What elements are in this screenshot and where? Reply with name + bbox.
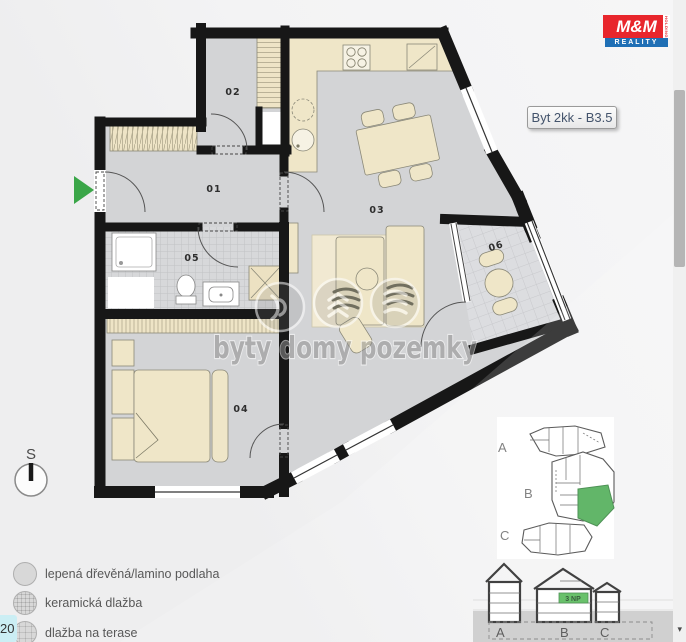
logo-reality-label: REALITY bbox=[605, 38, 668, 47]
elevation-label-a: A bbox=[496, 625, 505, 640]
minimap-building-c bbox=[522, 523, 592, 555]
stove bbox=[343, 45, 370, 70]
bedroom-cabinet bbox=[112, 418, 134, 460]
legend-label: lepená dřevěná/lamino podlaha bbox=[45, 567, 219, 581]
elevation-label-b: B bbox=[560, 625, 569, 640]
elevation: 3 NP A B C bbox=[473, 564, 680, 642]
closet-shelves bbox=[257, 38, 284, 108]
scrollbar-thumb[interactable] bbox=[674, 90, 685, 267]
corner-zoom-badge[interactable]: 20 bbox=[0, 615, 17, 642]
bedroom-cabinet bbox=[112, 370, 134, 414]
elevation-floor-tag: 3 NP bbox=[565, 596, 581, 603]
minimap: A B C bbox=[497, 417, 614, 559]
floorplan-viewer: 01 02 03 04 05 06 byty domy pozemky S bbox=[0, 0, 686, 642]
watermark-text: byty domy pozemky bbox=[213, 331, 477, 366]
room-label-05: 05 bbox=[184, 253, 199, 264]
bed-side bbox=[212, 370, 228, 462]
shower bbox=[112, 233, 156, 271]
storage-niche bbox=[108, 277, 154, 308]
minimap-label-b: B bbox=[524, 486, 533, 501]
tilted-stripes-icon bbox=[371, 279, 419, 327]
unit-tag-button[interactable]: Byt 2kk - B3.5 bbox=[527, 106, 617, 129]
minimap-label-c: C bbox=[500, 528, 509, 543]
logo-wordmark: M&M bbox=[603, 15, 670, 38]
minimap-label-a: A bbox=[498, 440, 507, 455]
elevation-label-c: C bbox=[600, 625, 609, 640]
toilet-tank bbox=[176, 296, 196, 304]
basin-drain bbox=[220, 294, 223, 297]
room-label-04: 04 bbox=[233, 404, 248, 415]
sound-waves-icon bbox=[256, 283, 304, 331]
shaft-niche bbox=[261, 112, 283, 146]
legend-label: keramická dlažba bbox=[45, 596, 142, 610]
hall-wardrobe bbox=[110, 126, 197, 151]
room-label-01: 01 bbox=[206, 184, 221, 195]
mm-reality-logo: M&M HOLDING REALITY bbox=[603, 15, 670, 47]
elevation-building-c bbox=[596, 592, 619, 622]
entrance-arrow-icon bbox=[74, 176, 94, 204]
room-label-03: 03 bbox=[369, 205, 384, 216]
sink-drain bbox=[296, 144, 299, 147]
bed bbox=[134, 370, 210, 462]
elevation-building-a bbox=[489, 582, 520, 622]
compass: S bbox=[15, 446, 47, 496]
floorplan-canvas: 01 02 03 04 05 06 byty domy pozemky S bbox=[0, 0, 686, 642]
ceramic-tile-swatch-icon bbox=[13, 591, 37, 615]
legend-item-ceramic-tile: keramická dlažba bbox=[13, 591, 142, 615]
side-table bbox=[356, 268, 378, 290]
toilet bbox=[177, 275, 195, 297]
kitchen-sink bbox=[292, 129, 314, 151]
shower-drain bbox=[119, 261, 123, 265]
logo-holding-label: HOLDING bbox=[663, 15, 670, 38]
legend-label: dlažba na terase bbox=[45, 626, 137, 640]
room-label-02: 02 bbox=[225, 87, 240, 98]
legend-item-terrace-tile: dlažba na terase bbox=[13, 621, 137, 642]
compass-north-label: S bbox=[26, 446, 36, 463]
plain-floor-swatch-icon bbox=[13, 562, 37, 586]
bedroom-cabinet bbox=[112, 340, 134, 366]
legend-item-wood-floor: lepená dřevěná/lamino podlaha bbox=[13, 562, 219, 586]
scroll-down-arrow-icon[interactable]: ▾ bbox=[677, 624, 682, 634]
